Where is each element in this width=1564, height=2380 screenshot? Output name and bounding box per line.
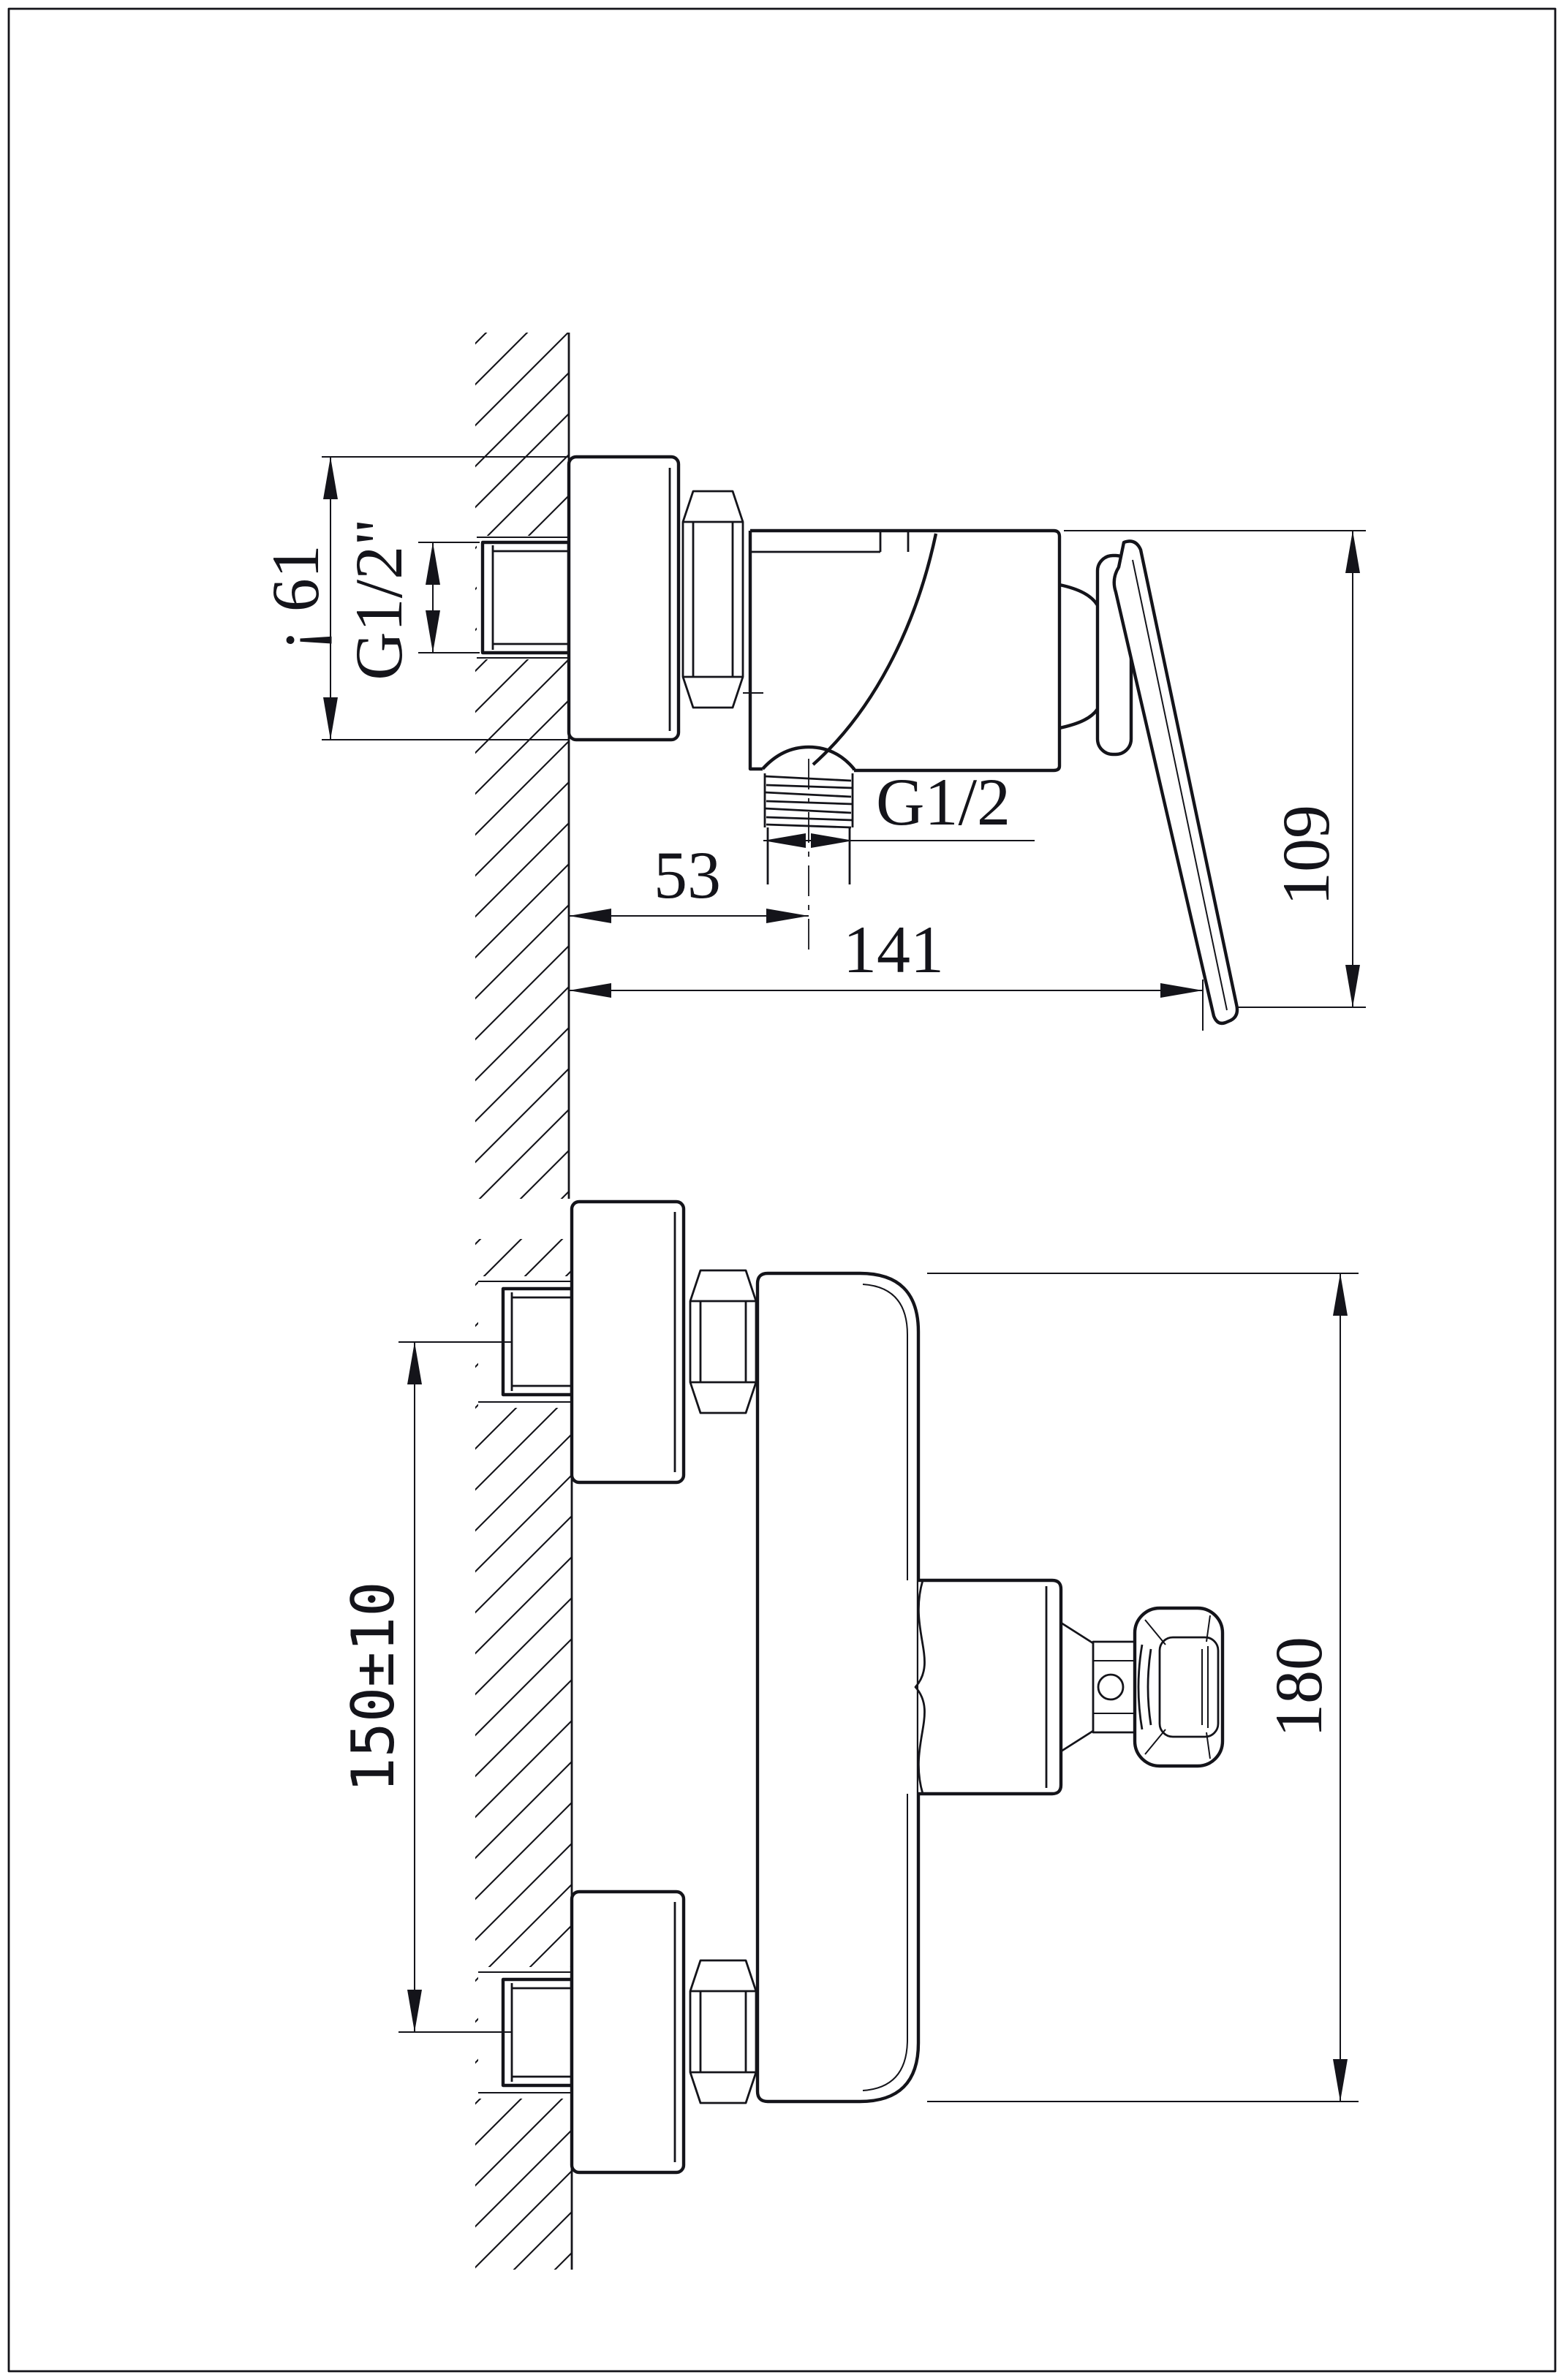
- front-view: 150±10 180: [339, 1202, 1359, 2270]
- dim-label-wall-to-handle-tip: 141: [843, 912, 944, 987]
- dim-label-inlet-thread: G1/2": [341, 518, 416, 681]
- inlet-union: [477, 536, 569, 659]
- escutcheon-plate-top: [572, 1202, 684, 1482]
- dim-label-wall-to-outlet: 53: [654, 838, 721, 912]
- technical-drawing-canvas: ¡ 61 G1/2" G1/2 53: [0, 0, 1564, 2380]
- body-sweep-curve: [813, 534, 936, 765]
- dim-inlet-thread: G1/2": [341, 518, 480, 681]
- hex-nut: [683, 491, 743, 708]
- mixer-body-front: [758, 1273, 918, 2102]
- knob-face: [1160, 1637, 1218, 1737]
- dim-label-outlet-thread: G1/2: [876, 765, 1010, 839]
- dim-wall-to-outlet: 53: [569, 838, 809, 923]
- drawing-page: ¡ 61 G1/2" G1/2 53: [0, 0, 1564, 2380]
- side-section-view: ¡ 61 G1/2" G1/2 53: [258, 333, 1366, 1199]
- dim-label-inlet-spacing: 150±10: [339, 1582, 407, 1793]
- wall-hatch: [475, 333, 569, 1199]
- dim-wall-to-handle-tip: 141: [569, 912, 1203, 1031]
- valve-body: [743, 531, 1059, 770]
- dim-label-body-height: 180: [1261, 1637, 1336, 1737]
- escutcheon-plate: [569, 457, 679, 740]
- dim-label-escutcheon-height: ¡ 61: [258, 545, 333, 651]
- dim-label-overall-depth: 109: [1269, 805, 1343, 906]
- escutcheon-plate-bottom: [572, 1892, 684, 2172]
- lever-handle-blade: [1114, 541, 1237, 1023]
- cartridge-and-knob: [915, 1580, 1223, 1794]
- stem-screw: [1098, 1675, 1123, 1699]
- stem-and-handle: [1059, 541, 1237, 1023]
- outlet-thread: [765, 759, 853, 952]
- dim-outlet-thread: G1/2: [763, 765, 1035, 848]
